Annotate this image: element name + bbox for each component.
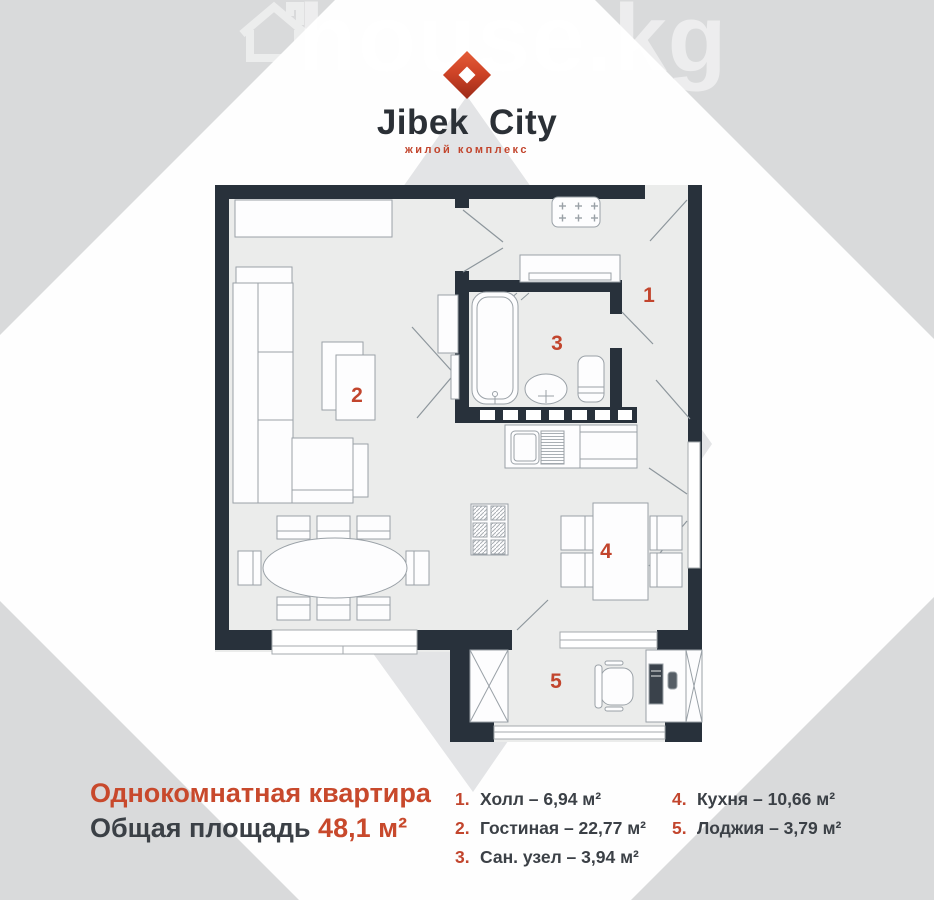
legend-number: 3. [455,843,480,872]
bathroom-sink [525,374,567,404]
total-area-label: Общая площадь [90,813,311,843]
legend-item-living: 2. Гостиная – 22,77 м² [455,814,646,843]
legend-text: Лоджия – 3,79 м² [697,814,841,843]
poster-canvas: house.kg Jibek City жилой комплекс [0,0,934,900]
room-label-loggia: 5 [550,670,562,693]
door-leaf-small [451,355,459,399]
legend-number: 1. [455,785,480,814]
room-label-hall: 1 [643,284,655,307]
apartment-type-title: Однокомнатная квартира [90,776,431,811]
total-area-line: Общая площадь 48,1 м² [90,811,431,846]
stove [471,504,508,555]
storage-box-left [470,650,508,722]
legend-number: 4. [672,785,697,814]
legend-text: Кухня – 10,66 м² [697,785,835,814]
shaft-wall [470,407,637,423]
desk [646,650,686,722]
hall-shelf [520,255,620,282]
title-block: Однокомнатная квартира Общая площадь 48,… [90,776,431,846]
side-window [688,442,700,568]
room-label-bathroom: 3 [551,332,563,355]
room-label-living: 2 [351,384,363,407]
legend-number: 2. [455,814,480,843]
watermark-text: house.kg [298,0,727,94]
toilet [578,356,604,402]
room-label-kitchen: 4 [600,540,612,563]
legend-item-hall: 1. Холл – 6,94 м² [455,785,646,814]
living-room-window [272,630,417,654]
kitchen-counter [505,425,637,468]
legend-item-bathroom: 3. Сан. узел – 3,94 м² [455,843,646,872]
total-area-value: 48,1 м² [318,813,407,843]
office-chair [595,661,633,711]
legend-item-kitchen: 4. Кухня – 10,66 м² [672,785,841,814]
legend-text: Сан. узел – 3,94 м² [480,843,639,872]
wardrobe [235,200,392,237]
shoe-cabinet [552,197,600,227]
legend-number: 5. [672,814,697,843]
monitor-icon [649,664,663,704]
logo-tagline: жилой комплекс [0,144,934,156]
floor-plan: 1 2 3 4 5 [215,185,705,745]
storage-box-right [686,650,702,722]
logo-brand: Jibek City [0,103,934,143]
door-leaf [438,295,458,353]
legend-column-2: 4. Кухня – 10,66 м² 5. Лоджия – 3,79 м² [672,785,841,843]
legend-column-1: 1. Холл – 6,94 м² 2. Гостиная – 22,77 м²… [455,785,646,872]
legend-item-loggia: 5. Лоджия – 3,79 м² [672,814,841,843]
bathtub [472,292,518,404]
legend-text: Холл – 6,94 м² [480,785,601,814]
legend-text: Гостиная – 22,77 м² [480,814,646,843]
